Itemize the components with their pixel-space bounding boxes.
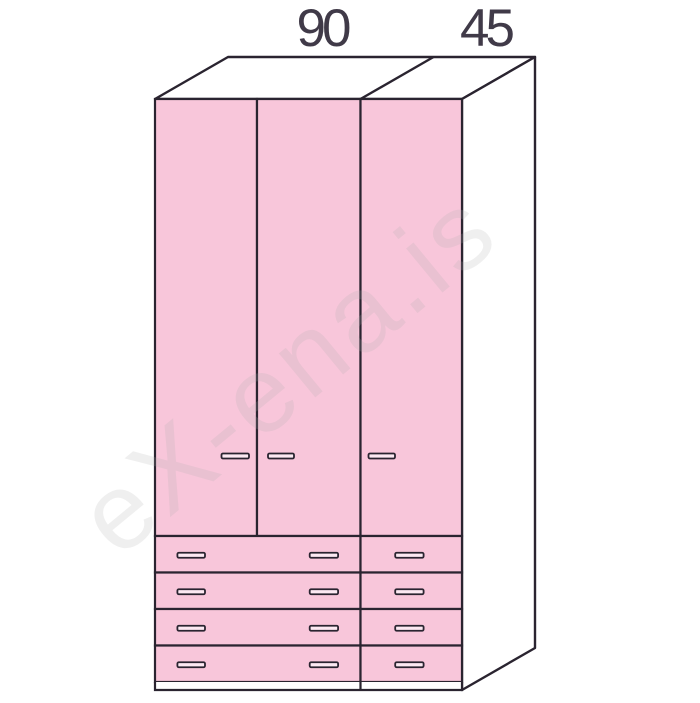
svg-text:90: 90 — [297, 0, 350, 58]
svg-text:45: 45 — [460, 0, 513, 58]
